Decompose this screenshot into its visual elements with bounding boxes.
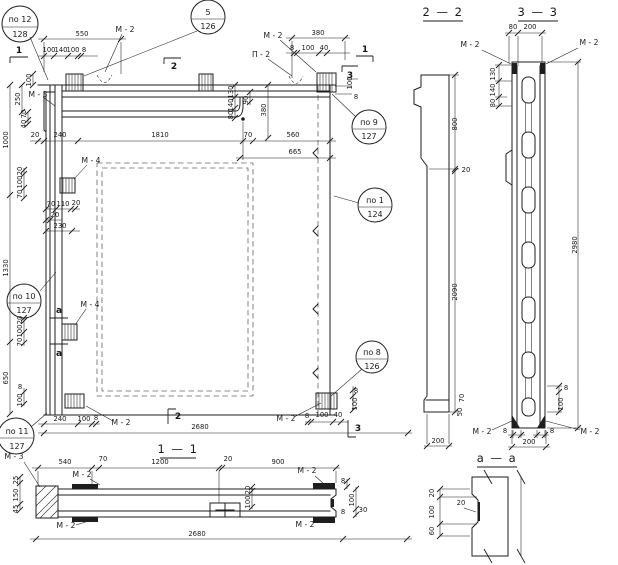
dim: 20 [51, 211, 60, 219]
callout-number: 127 [16, 306, 31, 315]
mark-label: М - 2 [264, 31, 283, 40]
callout-label: по 12 [9, 15, 32, 24]
dim: 70 [16, 190, 24, 199]
dim: 1330 [2, 259, 10, 276]
dim: 70 [244, 131, 253, 139]
flag-a-top: а [56, 306, 62, 316]
dim: 70 [20, 110, 28, 119]
dim: 80 [509, 23, 518, 31]
dim: 140 [227, 99, 235, 112]
dim: 550 [76, 30, 89, 38]
dim: 2980 [571, 236, 579, 253]
callout-number: 128 [12, 30, 27, 39]
dim: 800 [451, 118, 459, 131]
mark-label: М - 3 [5, 452, 24, 461]
dim: 8 [341, 477, 345, 485]
dim: 20 [462, 166, 471, 174]
dim: 20 [244, 486, 252, 495]
section-a-a: а — а 20 100 60 20 [428, 451, 525, 563]
dim: 2680 [191, 423, 208, 431]
lifting-loop-arcs [97, 75, 303, 84]
callout-po8: по 8 126 [356, 341, 388, 373]
section-title: 1 — 1 [158, 442, 199, 456]
dim: 1810 [151, 131, 168, 139]
dim: 70 [47, 200, 56, 208]
dim: 90 [242, 96, 250, 105]
dim: 650 [2, 372, 10, 385]
dim: 100 [428, 506, 436, 519]
dim: 100 [348, 494, 356, 507]
mark-label: М - 2 [298, 466, 317, 475]
dimension-lines [7, 35, 412, 436]
dim: 8 [564, 384, 568, 392]
dim: 100 [302, 44, 315, 52]
dim: 8 [290, 44, 294, 52]
dim: 130 [227, 86, 235, 99]
dim: 20 [31, 131, 40, 139]
dim: 45 [12, 505, 20, 514]
dim: 8 [305, 412, 309, 420]
callout-number: 127 [9, 442, 24, 451]
dim: 8 [354, 387, 358, 395]
flag-a-bottom: а [56, 349, 62, 359]
dim: 40 [320, 44, 329, 52]
mark-label: М - 2 [73, 470, 92, 479]
section-title: 2 — 2 [423, 5, 464, 19]
dim: 380 [312, 29, 325, 37]
dim: 8 [341, 508, 345, 516]
opening-outline [97, 163, 253, 396]
dim: 100 [16, 325, 24, 338]
dim: 2090 [451, 283, 459, 300]
dim: 230 [54, 222, 67, 230]
dim: 80 [227, 111, 235, 120]
dim: 20 [16, 316, 24, 325]
dim: 60 [428, 527, 436, 536]
opening-outline-inner [102, 168, 248, 391]
mark-label: М - 2 [112, 418, 131, 427]
dim: 25 [12, 476, 20, 485]
dim: 560 [287, 131, 300, 139]
callout-po10: по 10 127 [7, 284, 41, 318]
embed-plates [60, 73, 337, 409]
dim: 40 [334, 411, 343, 419]
dim: 250 [14, 93, 22, 106]
dim: 100 [346, 77, 354, 90]
dim: 240 [54, 131, 67, 139]
dim: 20 [16, 167, 24, 176]
dim: 150 [12, 489, 20, 502]
mark-label: М - 2 [277, 414, 296, 423]
dim: 665 [289, 148, 302, 156]
flag-1: 1 [16, 46, 22, 56]
dim: 130 [489, 68, 497, 81]
section-title: а — а [477, 451, 517, 465]
dim: 200 [524, 23, 537, 31]
dim: 70 [458, 394, 466, 403]
panel-drawing: 1 2 1 3 2 3 а а по 12 128 5 126 по 9 127… [0, 0, 618, 565]
mark-label: М - 2 [461, 40, 480, 49]
dim: 380 [260, 104, 268, 117]
reference-dot [241, 117, 245, 121]
mark-label: П - 2 [252, 50, 270, 59]
dim: 100 [16, 176, 24, 189]
callout-po11: по 11 127 [0, 418, 34, 454]
dim: 110 [57, 200, 70, 208]
dim: 20 [457, 499, 466, 507]
dim: 30 [359, 506, 368, 514]
flag-2b: 2 [175, 412, 181, 422]
dim: 40 [20, 120, 28, 129]
mark-label: М - 2 [580, 38, 599, 47]
callout-label: по 8 [363, 348, 381, 357]
dim: 1000 [2, 131, 10, 148]
callout-number: 126 [200, 22, 215, 31]
section-title: 3 — 3 [518, 5, 559, 19]
section-3-3: 3 — 3 80 200 М - 2 М - 2 130 140 80 2980… [461, 5, 600, 450]
dim: 20 [72, 199, 81, 207]
dim: 140 [489, 84, 497, 97]
dim: 8 [550, 427, 554, 435]
dim: 1200 [151, 458, 168, 466]
dim: 100 [78, 415, 91, 423]
section-2-2: 2 — 2 800 20 2090 70 50 200 [414, 5, 470, 449]
section-flags: 1 2 1 3 2 3 а а [10, 45, 373, 437]
dim: 100 [67, 46, 80, 54]
callout-number: 127 [361, 132, 376, 141]
mark-label: М - 2 [296, 520, 315, 529]
dim: 8 [94, 414, 98, 422]
main-plan-view [38, 73, 337, 415]
callout-label: по 11 [6, 427, 29, 436]
callout-label: по 9 [360, 118, 378, 127]
dim: 100 [351, 398, 359, 411]
dim: 8 [354, 93, 358, 101]
flag-1b: 1 [362, 45, 368, 55]
dim: 8 [503, 427, 507, 435]
flag-3b: 3 [355, 424, 361, 434]
dim: 2680 [188, 530, 205, 538]
callout-number: 124 [367, 210, 382, 219]
callout-number: 126 [364, 362, 379, 371]
dim: 8 [18, 383, 22, 391]
mark-label: М - 4 [82, 156, 101, 165]
dim: 200 [523, 438, 536, 446]
dim: 200 [432, 437, 445, 445]
dim: 100 [16, 394, 24, 407]
callout-5: 5 126 [191, 0, 225, 34]
callout-label: 5 [205, 8, 210, 17]
callout-label: по 10 [13, 292, 36, 301]
mark-label: М - 2 [581, 427, 600, 436]
dim: 100 [244, 496, 252, 509]
mark-label: М - 2 [473, 427, 492, 436]
mark-label: М - 2 [57, 521, 76, 530]
blueprint-page: 1 2 1 3 2 3 а а по 12 128 5 126 по 9 127… [0, 0, 618, 565]
callout-label: по 1 [366, 196, 384, 205]
dim: 50 [456, 408, 464, 417]
mark-label: М - 2 [116, 25, 135, 34]
dim: 20 [224, 455, 233, 463]
flag-2: 2 [171, 62, 177, 72]
main-view-dimensions: 550 100 140 100 8 М - 2 М - 2 П - 2 380 … [2, 25, 359, 431]
dim: 70 [99, 455, 108, 463]
dim: 8 [82, 46, 86, 54]
dim: 100 [25, 74, 33, 87]
callout-po1: по 1 124 [358, 188, 392, 222]
dim: 100 [316, 411, 329, 419]
dim: 900 [272, 458, 285, 466]
dim: 540 [59, 458, 72, 466]
callout-po9: по 9 127 [352, 110, 386, 144]
dim: 240 [54, 415, 67, 423]
section-1-1: 1 — 1 М - 3 М - 2 М - 2 М - 2 М - 2 540 … [5, 442, 412, 542]
dim: 20 [428, 489, 436, 498]
mark-label: М - 3 [29, 90, 48, 99]
mark-label: М - 4 [81, 300, 100, 309]
dim: 70 [16, 338, 24, 347]
callout-po12: по 12 128 [2, 6, 38, 42]
leader-lines [30, 31, 362, 427]
dim: 80 [489, 99, 497, 108]
dim: 100 [557, 398, 565, 411]
